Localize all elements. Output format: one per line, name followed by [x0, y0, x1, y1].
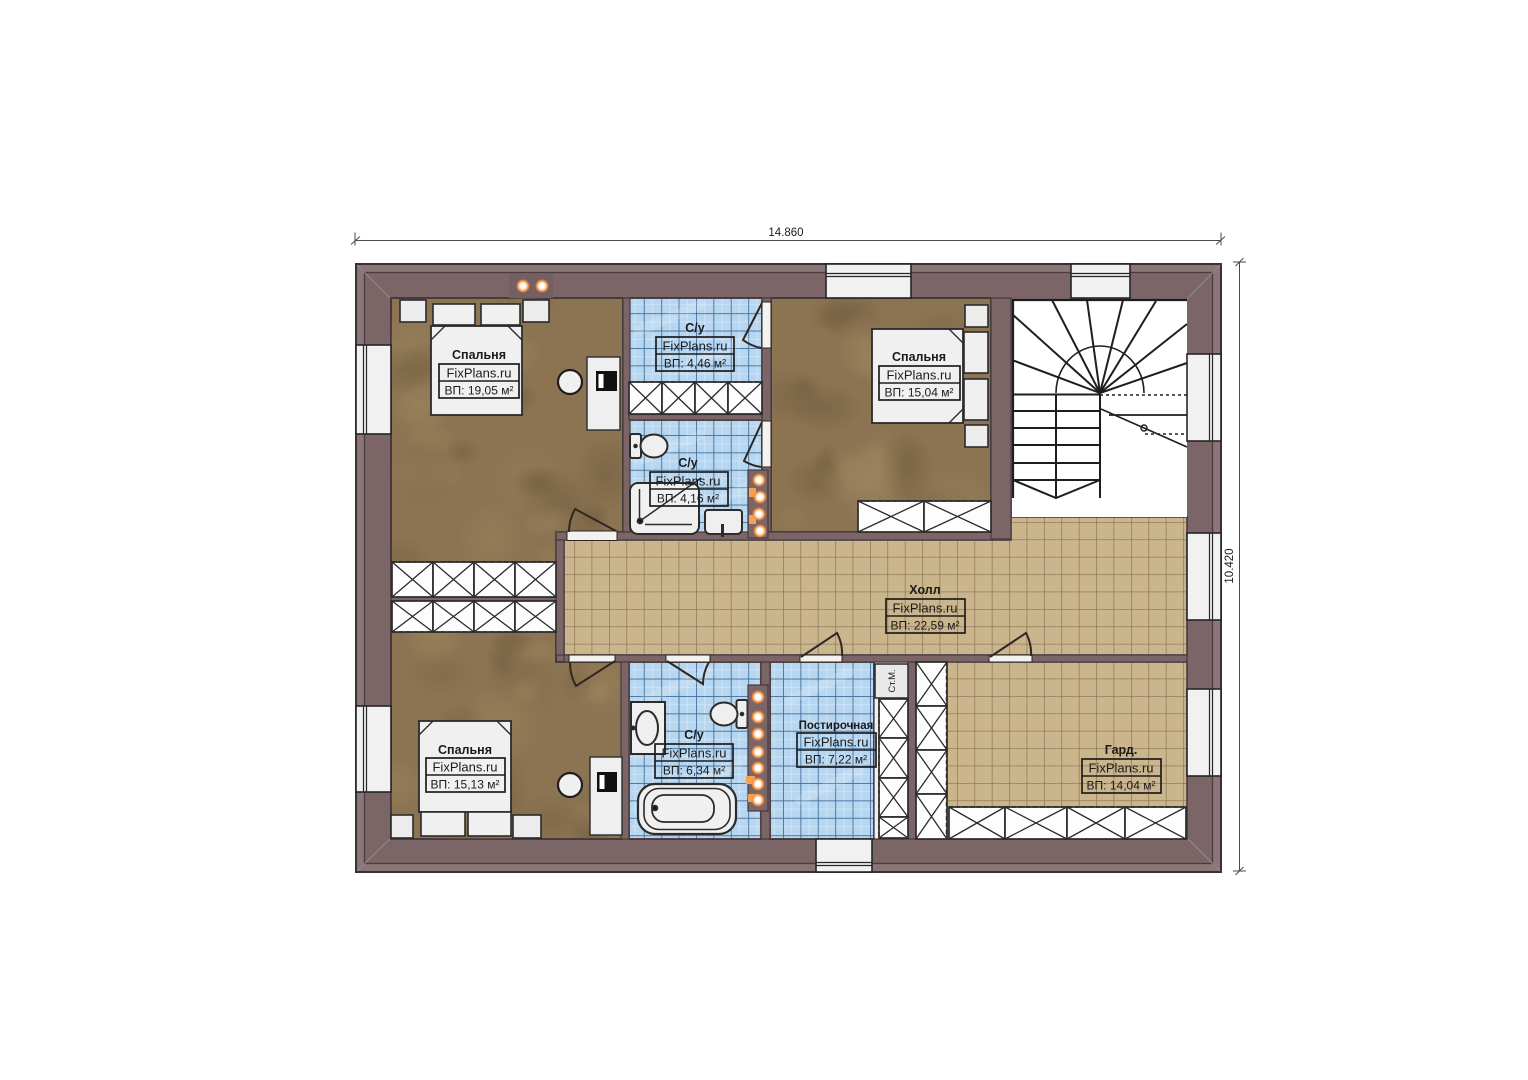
svg-text:FixPlans.ru: FixPlans.ru [446, 366, 511, 381]
svg-text:14.860: 14.860 [768, 227, 803, 239]
svg-text:FixPlans.ru: FixPlans.ru [803, 735, 868, 750]
svg-text:С/у: С/у [678, 456, 698, 470]
svg-text:FixPlans.ru: FixPlans.ru [655, 474, 720, 489]
svg-text:Спальня: Спальня [452, 348, 506, 362]
svg-text:Постирочная: Постирочная [799, 720, 874, 732]
svg-text:Гард.: Гард. [1105, 743, 1138, 757]
svg-text:Спальня: Спальня [438, 743, 492, 757]
svg-text:ВП: 7,22 м²: ВП: 7,22 м² [805, 753, 867, 767]
svg-text:ВП: 15,04 м²: ВП: 15,04 м² [885, 386, 954, 400]
svg-text:FixPlans.ru: FixPlans.ru [432, 760, 497, 775]
svg-text:10.420: 10.420 [1224, 548, 1236, 583]
svg-text:ВП: 19,05 м²: ВП: 19,05 м² [445, 384, 514, 398]
svg-text:С/у: С/у [684, 728, 704, 742]
svg-text:ВП: 4,16 м²: ВП: 4,16 м² [657, 492, 719, 506]
svg-text:Спальня: Спальня [892, 350, 946, 364]
svg-text:Холл: Холл [909, 583, 940, 597]
svg-text:ВП: 15,13 м²: ВП: 15,13 м² [431, 778, 500, 792]
svg-text:С/у: С/у [685, 321, 705, 335]
svg-text:FixPlans.ru: FixPlans.ru [1088, 761, 1153, 776]
svg-text:ВП: 14,04 м²: ВП: 14,04 м² [1087, 779, 1156, 793]
svg-text:Ст.М.: Ст.М. [887, 669, 898, 692]
svg-text:ВП: 4,46 м²: ВП: 4,46 м² [664, 357, 726, 371]
svg-text:FixPlans.ru: FixPlans.ru [892, 601, 957, 616]
svg-text:FixPlans.ru: FixPlans.ru [661, 746, 726, 761]
svg-text:ВП: 6,34 м²: ВП: 6,34 м² [663, 764, 725, 778]
svg-text:ВП: 22,59 м²: ВП: 22,59 м² [891, 619, 960, 633]
svg-text:FixPlans.ru: FixPlans.ru [662, 339, 727, 354]
svg-text:FixPlans.ru: FixPlans.ru [886, 368, 951, 383]
